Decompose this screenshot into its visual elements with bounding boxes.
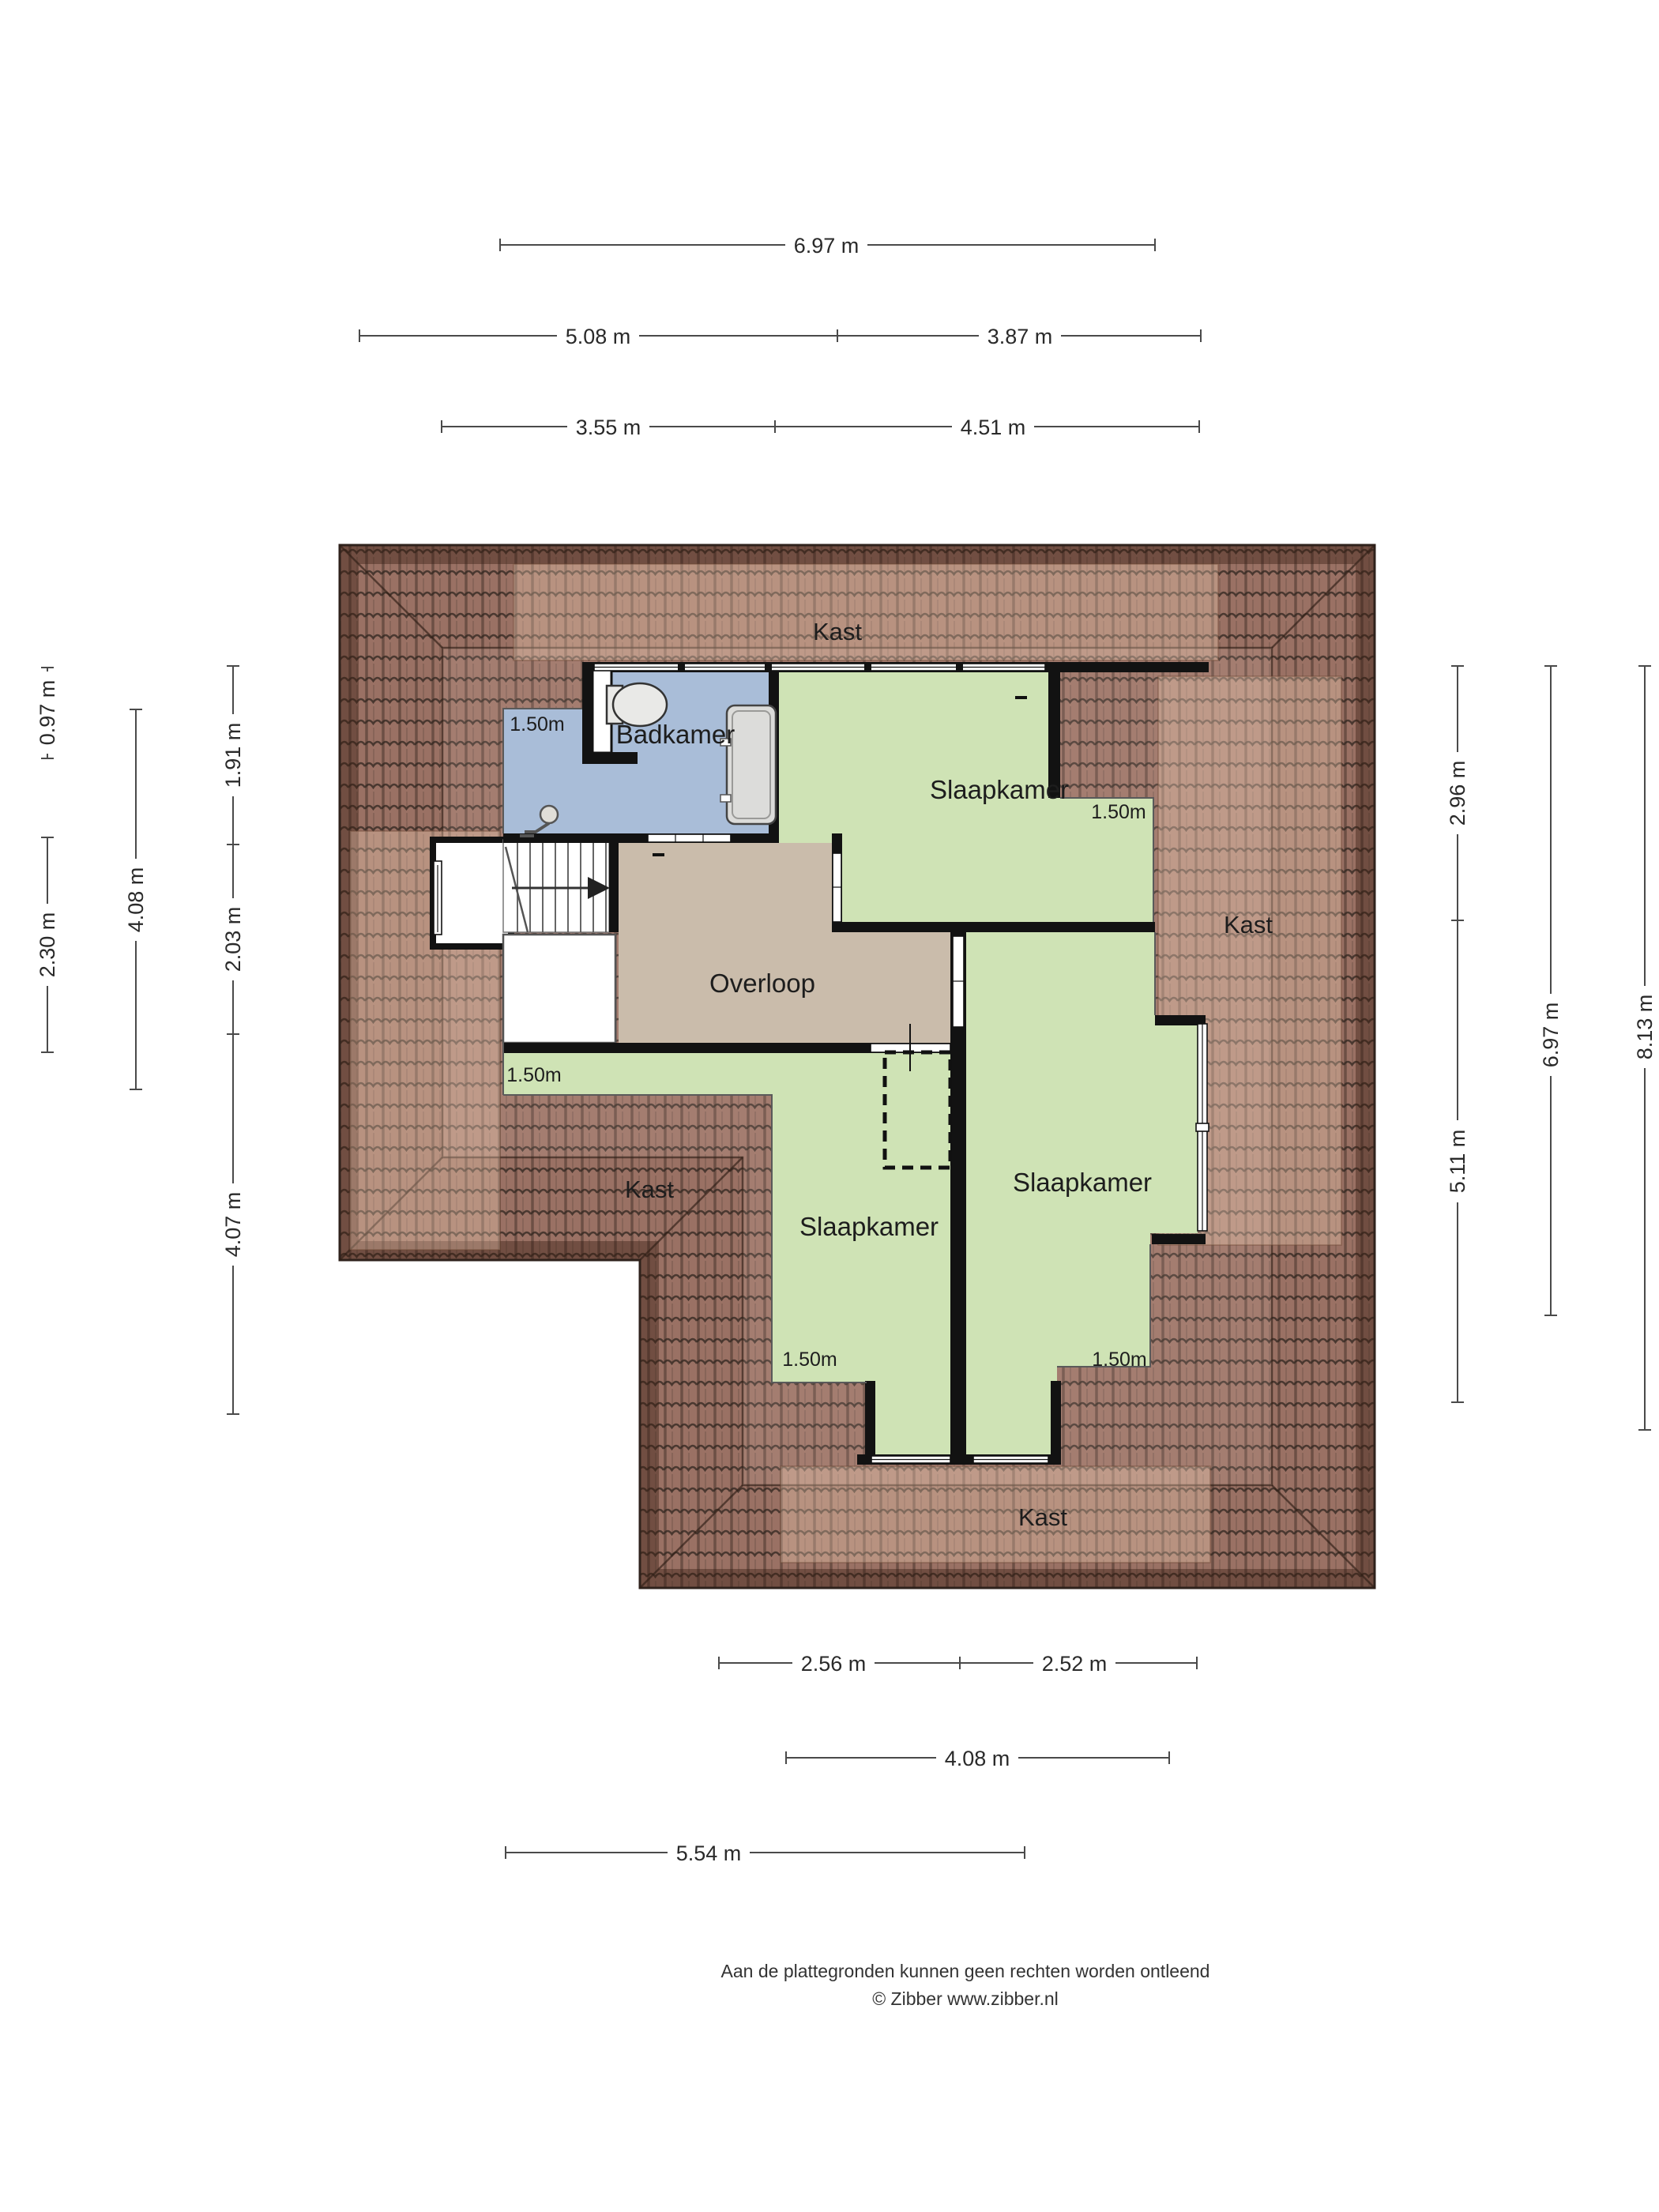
wall-bath-west	[582, 662, 592, 764]
dim-left-c: 1.91 m 2.03 m 4.07 m	[221, 666, 245, 1414]
knee-label-slaapkamer-left: 1.50m	[782, 1349, 837, 1371]
label-badkamer: Badkamer	[616, 720, 735, 749]
dim-top-1: 6.97 m	[500, 233, 1155, 258]
dimension-label: 8.13 m	[1633, 995, 1657, 1060]
dim-top-2: 5.08 m 3.87 m	[359, 324, 1201, 348]
stair-landing	[433, 840, 511, 946]
label-slaapkamer-left: Slaapkamer	[799, 1212, 939, 1241]
dim-top-3: 3.55 m 4.51 m	[442, 415, 1199, 439]
knee-label-slaapkamer-top: 1.50m	[1091, 801, 1145, 823]
dimension-label: 4.07 m	[221, 1192, 245, 1258]
dimension-label: 2.96 m	[1446, 761, 1469, 826]
label-kast-left: Kast	[625, 1176, 674, 1203]
label-kast-top: Kast	[813, 618, 862, 645]
shower-mixer-icon	[540, 806, 558, 823]
knee-label-left-mid: 1.50m	[506, 1064, 561, 1086]
footer-disclaimer: Aan de plattegronden kunnen geen rechten…	[721, 1961, 1210, 1981]
dimension-label: 6.97 m	[1539, 1003, 1563, 1068]
floorplan-page: Badkamer Slaapkamer Overloop Slaapkamer …	[0, 0, 1659, 2212]
bathtub-tap-2	[720, 795, 731, 802]
knee-label-slaapkamer-right: 1.50m	[1092, 1349, 1146, 1371]
dimension-label: 6.97 m	[794, 234, 860, 258]
dimension-label: 5.11 m	[1446, 1130, 1469, 1194]
label-overloop: Overloop	[709, 969, 815, 998]
dim-right-d: 2.96 m 5.11 m	[1446, 666, 1469, 1402]
dimension-label: 4.08 m	[124, 867, 148, 933]
wall-stub-right-window	[1051, 1381, 1061, 1465]
dim-bottom-3: 5.54 m	[506, 1841, 1025, 1865]
dim-right-f: 8.13 m	[1633, 666, 1657, 1430]
wall-bedroom-top-south	[832, 922, 1155, 932]
attic-zone-bottom	[781, 1466, 1210, 1563]
dimension-label: 3.87 m	[987, 325, 1053, 348]
dimension-label: 3.55 m	[576, 416, 641, 439]
dimension-label: 4.51 m	[961, 416, 1026, 439]
dim-bottom-1: 2.56 m 2.52 m	[719, 1651, 1197, 1676]
wall-stairs-overloop	[609, 843, 619, 932]
dim-bottom-2: 4.08 m	[786, 1746, 1169, 1770]
dimension-label: 4.08 m	[945, 1747, 1010, 1770]
attic-zone-top	[513, 564, 1218, 660]
stairwell-void	[503, 935, 615, 1043]
dimension-label: 5.08 m	[566, 325, 631, 348]
dimension-label: 0.97 m	[36, 680, 59, 746]
wall-bay-south	[1152, 1234, 1206, 1244]
dim-left-b: 4.08 m	[124, 709, 148, 1089]
wall-bath-south	[503, 833, 779, 843]
dimension-label: 1.91 m	[221, 723, 245, 788]
dim-left-a: 0.97 m 2.30 m	[36, 668, 59, 1052]
door-badkamer	[648, 834, 731, 842]
dimension-label: 2.03 m	[221, 907, 245, 972]
label-kast-bottom: Kast	[1018, 1503, 1067, 1531]
floorplan-canvas: Badkamer Slaapkamer Overloop Slaapkamer …	[0, 0, 1659, 2212]
dimension-label: 2.56 m	[801, 1652, 867, 1676]
window-bay-mullion	[1196, 1123, 1209, 1131]
dim-right-e: 6.97 m	[1539, 666, 1563, 1315]
dimension-label: 2.52 m	[1042, 1652, 1108, 1676]
dimension-label: 2.30 m	[36, 912, 59, 978]
wall-stub-left-window	[865, 1381, 875, 1465]
dimension-label: 5.54 m	[676, 1841, 742, 1865]
footer-copyright: © Zibber www.zibber.nl	[872, 1988, 1059, 2009]
knee-label-badkamer: 1.50m	[510, 713, 564, 735]
label-slaapkamer-right: Slaapkamer	[1013, 1168, 1152, 1197]
label-slaapkamer-top: Slaapkamer	[930, 775, 1069, 804]
footer: Aan de plattegronden kunnen geen rechten…	[721, 1961, 1210, 2009]
label-kast-right: Kast	[1224, 911, 1273, 939]
